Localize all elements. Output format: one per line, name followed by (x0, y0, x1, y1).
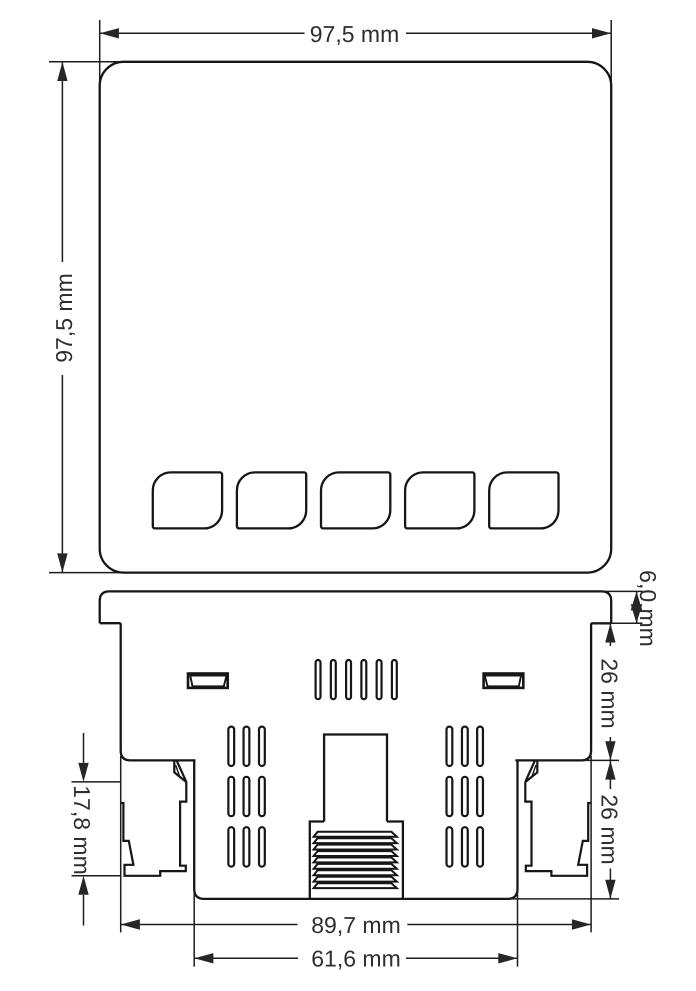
svg-text:89,7 mm: 89,7 mm (311, 912, 400, 938)
svg-text:6,0 mm: 6,0 mm (635, 570, 661, 647)
svg-text:17,8 mm: 17,8 mm (69, 785, 95, 874)
svg-text:26 mm: 26 mm (596, 794, 622, 864)
svg-text:97,5 mm: 97,5 mm (51, 273, 77, 362)
svg-text:61,6 mm: 61,6 mm (311, 946, 400, 972)
svg-text:97,5 mm: 97,5 mm (310, 21, 399, 47)
svg-text:26 mm: 26 mm (596, 658, 622, 728)
